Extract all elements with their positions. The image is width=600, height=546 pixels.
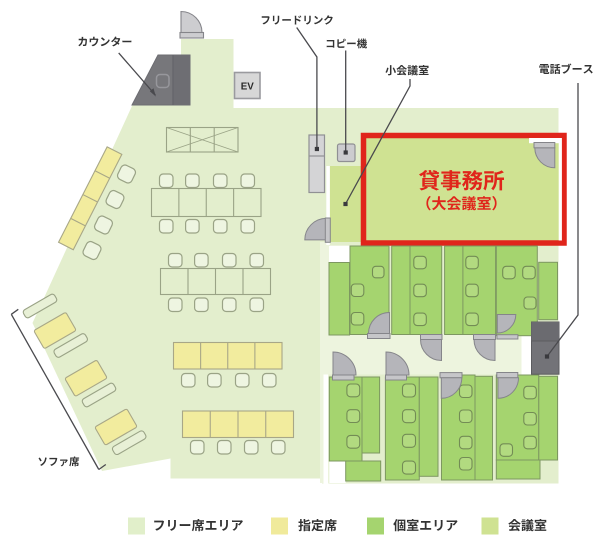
svg-text:EV: EV (241, 82, 255, 93)
